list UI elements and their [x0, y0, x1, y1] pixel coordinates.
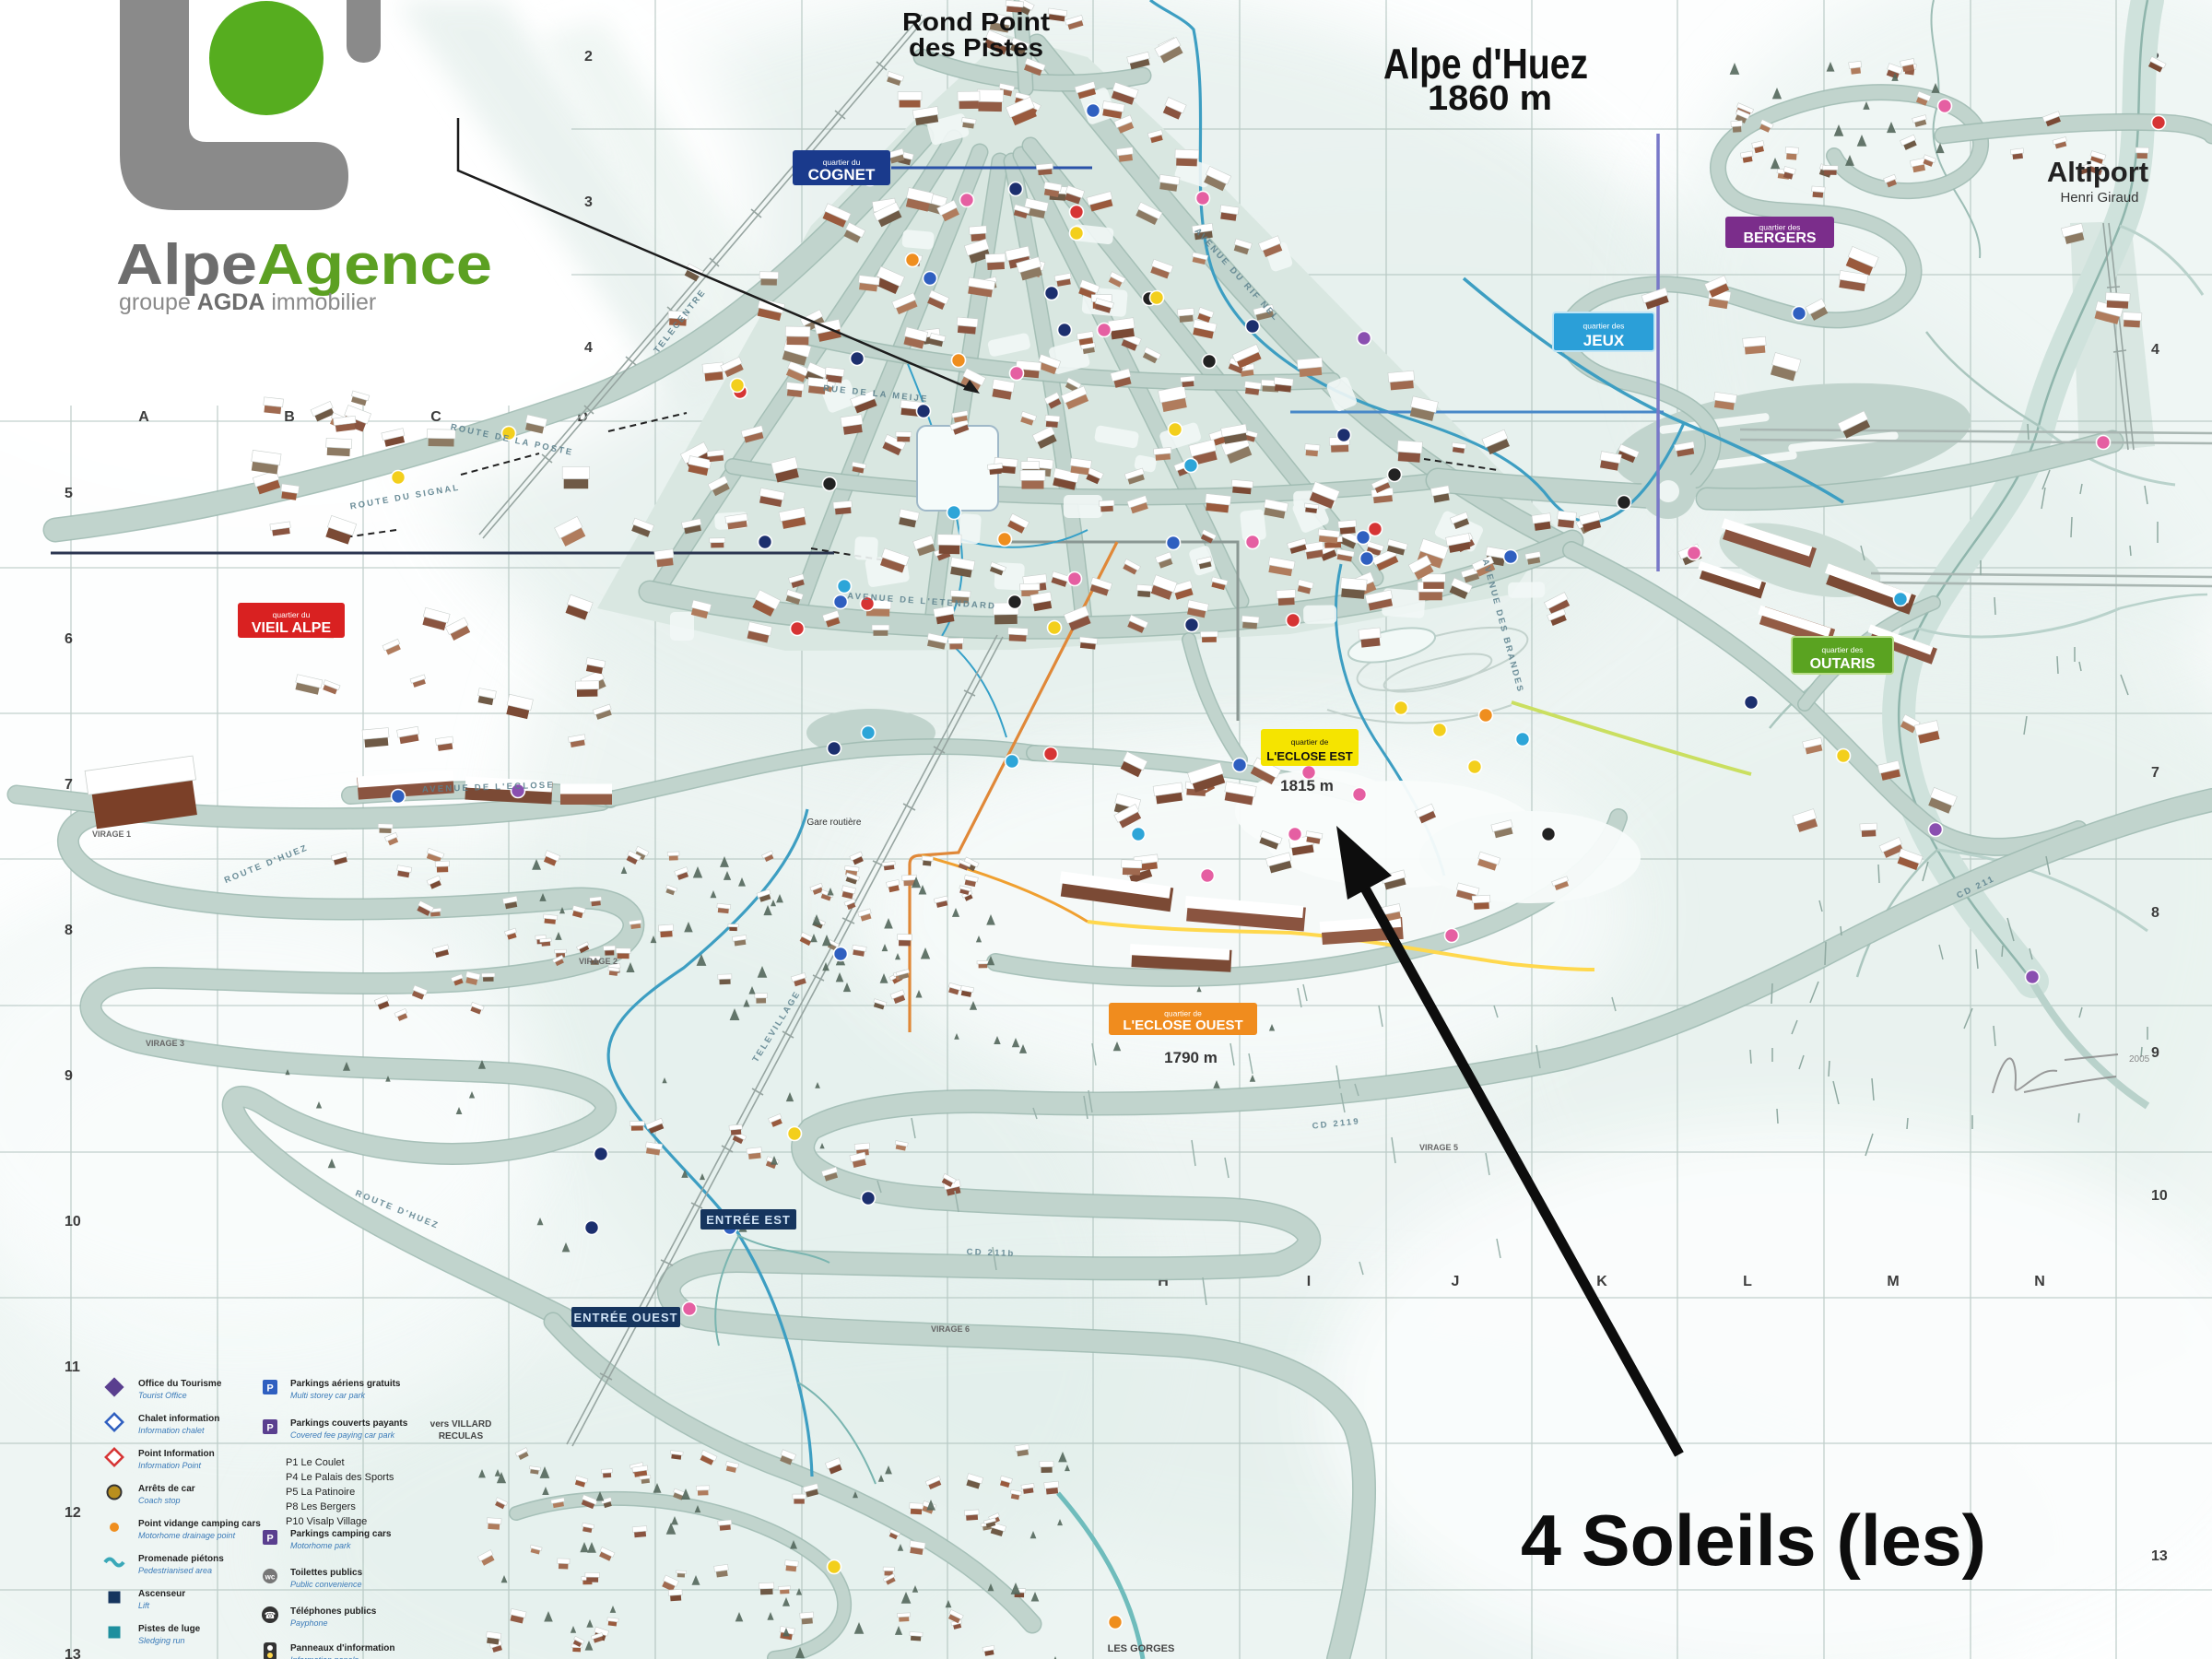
svg-text:Coach stop: Coach stop: [138, 1496, 181, 1505]
svg-text:5: 5: [65, 486, 73, 501]
svg-text:quartier de: quartier de: [1291, 737, 1329, 747]
svg-text:2: 2: [584, 49, 593, 65]
svg-text:Panneaux d'information: Panneaux d'information: [290, 1643, 395, 1653]
svg-text:L'ECLOSE OUEST: L'ECLOSE OUEST: [1123, 1018, 1242, 1033]
svg-text:Ascenseur: Ascenseur: [138, 1589, 185, 1599]
svg-text:Information Point: Information Point: [138, 1461, 202, 1470]
svg-text:Henri Giraud: Henri Giraud: [2060, 190, 2138, 206]
svg-text:Chalet information: Chalet information: [138, 1414, 219, 1424]
svg-text:N: N: [2034, 1274, 2045, 1289]
svg-text:COGNET: COGNET: [808, 166, 876, 183]
svg-text:9: 9: [65, 1068, 73, 1084]
svg-text:P: P: [266, 1423, 273, 1434]
svg-text:4: 4: [2151, 342, 2159, 358]
svg-text:Toilettes publics: Toilettes publics: [290, 1568, 363, 1578]
svg-text:Parkings couverts payants: Parkings couverts payants: [290, 1418, 408, 1429]
svg-text:Motorhome park: Motorhome park: [290, 1541, 351, 1550]
svg-text:A: A: [138, 409, 149, 425]
svg-text:JEUX: JEUX: [1583, 332, 1625, 349]
svg-text:VIRAGE 2: VIRAGE 2: [579, 957, 618, 966]
svg-text:Lift: Lift: [138, 1601, 150, 1610]
svg-text:quartier du: quartier du: [273, 610, 311, 619]
svg-text:Office du Tourisme: Office du Tourisme: [138, 1379, 222, 1389]
svg-text:Sledging run: Sledging run: [138, 1636, 185, 1645]
svg-text:1860 m: 1860 m: [1428, 79, 1552, 118]
svg-text:Promenade piétons: Promenade piétons: [138, 1554, 224, 1564]
svg-text:3: 3: [584, 194, 593, 210]
svg-text:9: 9: [2151, 1045, 2159, 1061]
svg-text:Multi storey car park: Multi storey car park: [290, 1391, 366, 1400]
svg-text:13: 13: [65, 1647, 81, 1659]
svg-text:Motorhome drainage point: Motorhome drainage point: [138, 1531, 236, 1540]
svg-text:vers VILLARD: vers VILLARD: [430, 1419, 492, 1430]
svg-text:Payphone: Payphone: [290, 1618, 328, 1628]
svg-text:Gare routière: Gare routière: [807, 818, 862, 828]
svg-text:quartier des: quartier des: [1822, 645, 1864, 654]
svg-text:Rond Point: Rond Point: [902, 7, 1050, 36]
svg-text:Point Information: Point Information: [138, 1449, 215, 1459]
svg-text:6: 6: [65, 631, 73, 647]
svg-text:12: 12: [65, 1505, 81, 1521]
svg-text:8: 8: [65, 923, 73, 938]
svg-text:Point vidange camping cars: Point vidange camping cars: [138, 1519, 261, 1529]
svg-text:OUTARIS: OUTARIS: [1810, 656, 1876, 672]
svg-text:1790 m: 1790 m: [1164, 1049, 1218, 1066]
svg-text:VIRAGE 1: VIRAGE 1: [92, 829, 131, 839]
svg-text:des Pistes: des Pistes: [909, 33, 1043, 62]
svg-text:I: I: [1307, 1274, 1311, 1289]
svg-text:VIRAGE 6: VIRAGE 6: [931, 1324, 970, 1334]
svg-text:4 Soleils (les): 4 Soleils (les): [1521, 1500, 1986, 1581]
svg-text:CD 211b: CD 211b: [966, 1247, 1015, 1259]
svg-text:4: 4: [584, 340, 593, 356]
svg-text:1815 m: 1815 m: [1280, 777, 1334, 794]
svg-text:J: J: [1452, 1274, 1460, 1289]
svg-text:P1 Le Coulet: P1 Le Coulet: [286, 1457, 345, 1468]
svg-text:13: 13: [2151, 1548, 2168, 1564]
svg-text:10: 10: [2151, 1188, 2168, 1204]
svg-text:RECULAS: RECULAS: [439, 1431, 484, 1441]
svg-text:L'ECLOSE EST: L'ECLOSE EST: [1266, 749, 1352, 763]
svg-text:AlpeAgence: AlpeAgence: [116, 233, 492, 297]
svg-text:Parkings camping cars: Parkings camping cars: [290, 1529, 392, 1539]
svg-text:P: P: [266, 1534, 273, 1545]
svg-text:Covered fee paying car park: Covered fee paying car park: [290, 1430, 395, 1440]
svg-text:wc: wc: [265, 1573, 276, 1582]
svg-text:Pistes de luge: Pistes de luge: [138, 1624, 201, 1634]
svg-text:Information panels: Information panels: [290, 1655, 359, 1659]
svg-text:B: B: [284, 409, 295, 425]
svg-text:8: 8: [2151, 905, 2159, 921]
svg-text:7: 7: [2151, 765, 2159, 781]
svg-text:Information chalet: Information chalet: [138, 1426, 205, 1435]
svg-text:Arrêts de car: Arrêts de car: [138, 1484, 195, 1494]
svg-text:C: C: [430, 409, 441, 425]
svg-text:P: P: [266, 1383, 273, 1394]
svg-text:K: K: [1596, 1274, 1607, 1289]
svg-text:Tourist Office: Tourist Office: [138, 1391, 187, 1400]
svg-text:P10 Visalp Village: P10 Visalp Village: [286, 1516, 367, 1527]
svg-text:ENTRÉE EST: ENTRÉE EST: [706, 1213, 791, 1227]
svg-text:Pedestrianised area: Pedestrianised area: [138, 1566, 212, 1575]
svg-text:P4 Le Palais des Sports: P4 Le Palais des Sports: [286, 1472, 394, 1483]
svg-text:L: L: [1743, 1274, 1752, 1289]
svg-text:7: 7: [65, 777, 73, 793]
svg-text:VIRAGE 3: VIRAGE 3: [146, 1039, 184, 1048]
svg-text:Altiport: Altiport: [2047, 156, 2148, 188]
svg-text:groupe AGDA immobilier: groupe AGDA immobilier: [119, 289, 376, 315]
svg-text:Parkings aériens gratuits: Parkings aériens gratuits: [290, 1379, 401, 1389]
svg-text:VIEIL ALPE: VIEIL ALPE: [252, 620, 332, 636]
svg-text:LES GORGES: LES GORGES: [1108, 1643, 1175, 1654]
svg-text:Téléphones publics: Téléphones publics: [290, 1606, 377, 1617]
svg-text:VIRAGE 5: VIRAGE 5: [1419, 1143, 1458, 1152]
svg-text:P8 Les Bergers: P8 Les Bergers: [286, 1501, 356, 1512]
svg-text:10: 10: [65, 1214, 81, 1230]
svg-text:Public convenience: Public convenience: [290, 1580, 362, 1589]
svg-text:2005: 2005: [2129, 1054, 2150, 1065]
svg-text:11: 11: [65, 1359, 80, 1375]
svg-text:ENTRÉE OUEST: ENTRÉE OUEST: [573, 1311, 677, 1324]
svg-text:☎: ☎: [265, 1611, 276, 1621]
svg-text:BERGERS: BERGERS: [1743, 230, 1816, 246]
svg-text:P5 La Patinoire: P5 La Patinoire: [286, 1487, 355, 1498]
svg-text:M: M: [1887, 1274, 1899, 1289]
svg-text:quartier des: quartier des: [1583, 322, 1625, 331]
